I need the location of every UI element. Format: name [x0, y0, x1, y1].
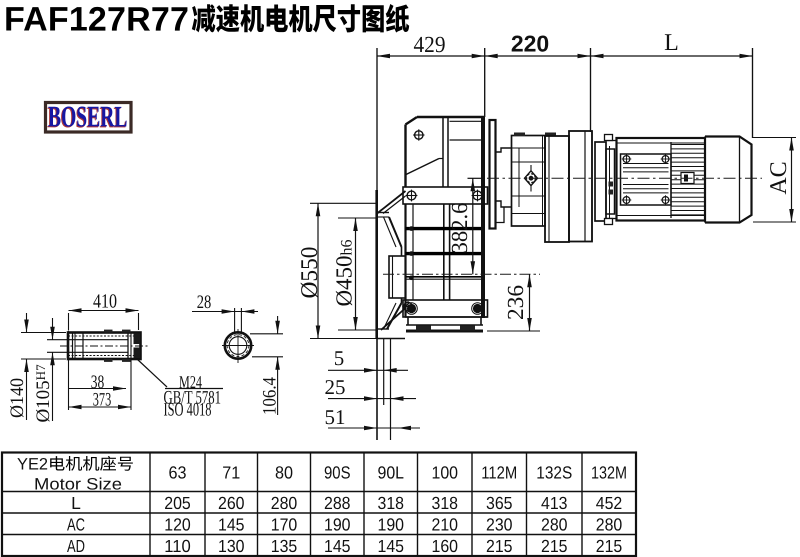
svg-text:135: 135 — [271, 536, 298, 556]
svg-text:63: 63 — [168, 462, 186, 482]
svg-text:FAF127R77: FAF127R77 — [4, 1, 189, 39]
svg-text:410: 410 — [93, 290, 117, 312]
svg-text:318: 318 — [431, 493, 458, 513]
svg-text:25: 25 — [324, 375, 345, 399]
svg-text:132S: 132S — [536, 462, 572, 482]
svg-text:L: L — [71, 493, 81, 513]
svg-text:429: 429 — [413, 32, 445, 57]
svg-text:205: 205 — [164, 493, 191, 513]
svg-text:Motor Size: Motor Size — [34, 475, 122, 493]
svg-text:AC: AC — [766, 161, 792, 194]
svg-text:190: 190 — [377, 514, 404, 534]
svg-text:452: 452 — [596, 493, 623, 513]
svg-text:145: 145 — [377, 536, 404, 556]
svg-text:Ø140: Ø140 — [7, 378, 28, 418]
svg-text:160: 160 — [431, 536, 458, 556]
svg-text:373: 373 — [93, 389, 112, 410]
svg-text:Ø550: Ø550 — [297, 246, 323, 298]
svg-text:130: 130 — [218, 536, 245, 556]
svg-text:100: 100 — [431, 462, 458, 482]
svg-text:382.6: 382.6 — [447, 202, 472, 253]
svg-text:90S: 90S — [324, 462, 351, 482]
svg-text:BOSERL: BOSERL — [48, 100, 128, 133]
svg-text:112M: 112M — [481, 462, 517, 482]
svg-text:220: 220 — [511, 30, 549, 56]
svg-text:AC: AC — [67, 514, 85, 534]
svg-text:AD: AD — [67, 536, 85, 556]
svg-text:145: 145 — [324, 536, 351, 556]
svg-text:288: 288 — [324, 493, 351, 513]
svg-text:280: 280 — [541, 514, 568, 534]
svg-text:215: 215 — [596, 536, 623, 556]
svg-text:413: 413 — [541, 493, 568, 513]
svg-text:280: 280 — [271, 493, 298, 513]
svg-text:ISO 4018: ISO 4018 — [163, 400, 211, 421]
svg-text:90L: 90L — [377, 462, 404, 482]
svg-text:210: 210 — [431, 514, 458, 534]
svg-text:YE2: YE2 — [17, 456, 48, 474]
svg-text:190: 190 — [324, 514, 351, 534]
svg-text:318: 318 — [377, 493, 404, 513]
svg-text:365: 365 — [486, 493, 513, 513]
svg-text:28: 28 — [197, 292, 212, 313]
svg-text:51: 51 — [324, 405, 345, 429]
svg-text:L: L — [664, 30, 679, 56]
svg-text:80: 80 — [275, 462, 293, 482]
svg-text:280: 280 — [596, 514, 623, 534]
svg-text:170: 170 — [271, 514, 298, 534]
svg-text:230: 230 — [486, 514, 513, 534]
svg-text:236: 236 — [503, 285, 528, 320]
svg-text:106.4: 106.4 — [259, 377, 280, 415]
svg-text:145: 145 — [218, 514, 245, 534]
svg-text:132M: 132M — [591, 462, 627, 482]
svg-text:215: 215 — [541, 536, 568, 556]
svg-text:260: 260 — [218, 493, 245, 513]
svg-text:71: 71 — [222, 462, 240, 482]
svg-text:110: 110 — [164, 536, 191, 556]
svg-text:5: 5 — [334, 346, 345, 370]
svg-text:215: 215 — [486, 536, 513, 556]
svg-text:120: 120 — [164, 514, 191, 534]
